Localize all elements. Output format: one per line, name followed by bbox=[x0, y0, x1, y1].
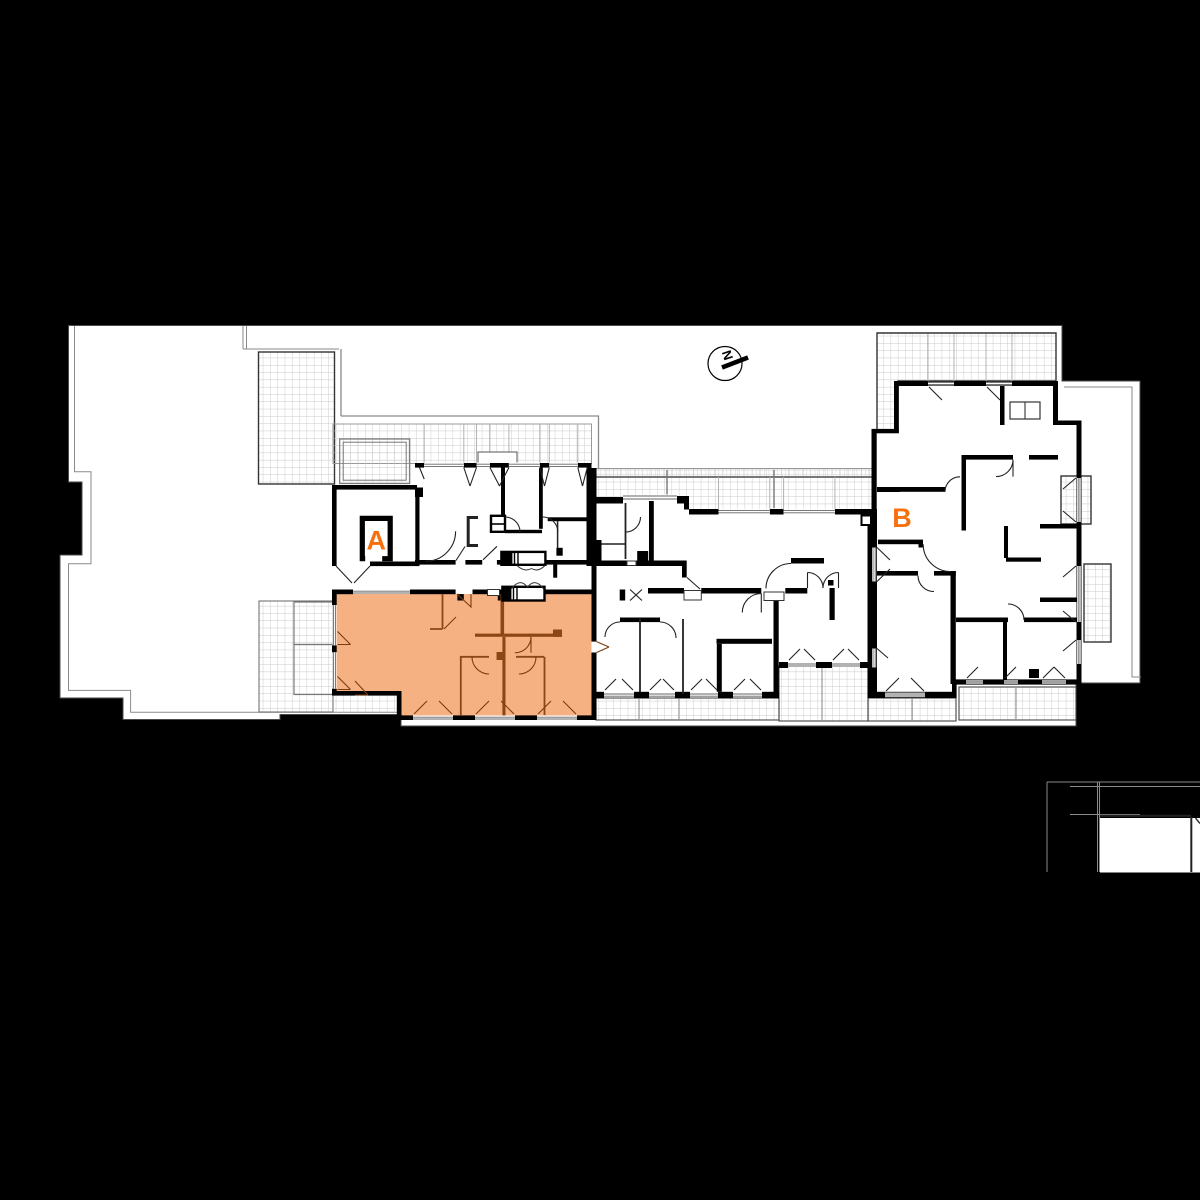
svg-text:B: B bbox=[892, 503, 912, 533]
svg-text:A: A bbox=[366, 526, 386, 556]
